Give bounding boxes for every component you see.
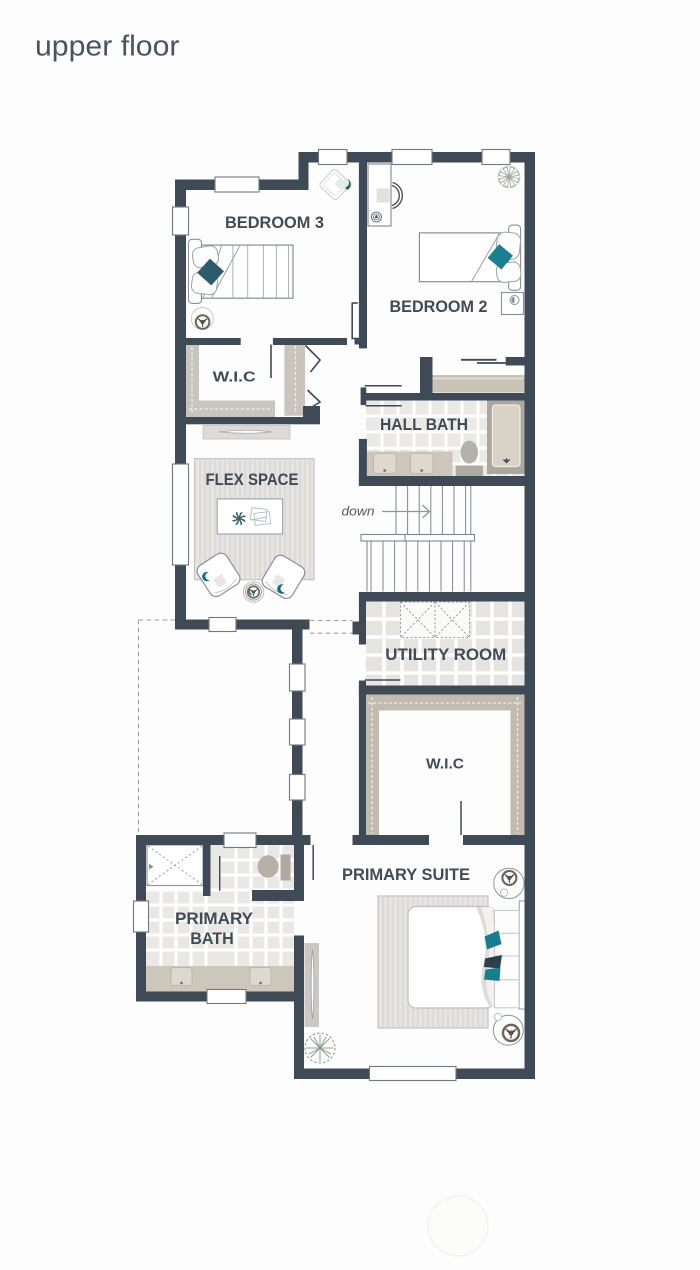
- svg-text:W.I.C: W.I.C: [426, 757, 465, 773]
- svg-text:BATH: BATH: [190, 930, 234, 948]
- svg-text:HALL BATH: HALL BATH: [380, 416, 468, 434]
- svg-text:FLEX SPACE: FLEX SPACE: [206, 471, 299, 489]
- svg-text:UTILITY ROOM: UTILITY ROOM: [385, 646, 506, 664]
- svg-text:down: down: [342, 504, 375, 519]
- svg-text:BEDROOM 2: BEDROOM 2: [390, 298, 488, 316]
- svg-text:BEDROOM 3: BEDROOM 3: [225, 214, 324, 232]
- svg-text:PRIMARY SUITE: PRIMARY SUITE: [342, 866, 470, 884]
- svg-text:upper floor: upper floor: [35, 31, 180, 63]
- svg-text:W.I.C: W.I.C: [213, 370, 257, 386]
- svg-text:PRIMARY: PRIMARY: [175, 910, 253, 928]
